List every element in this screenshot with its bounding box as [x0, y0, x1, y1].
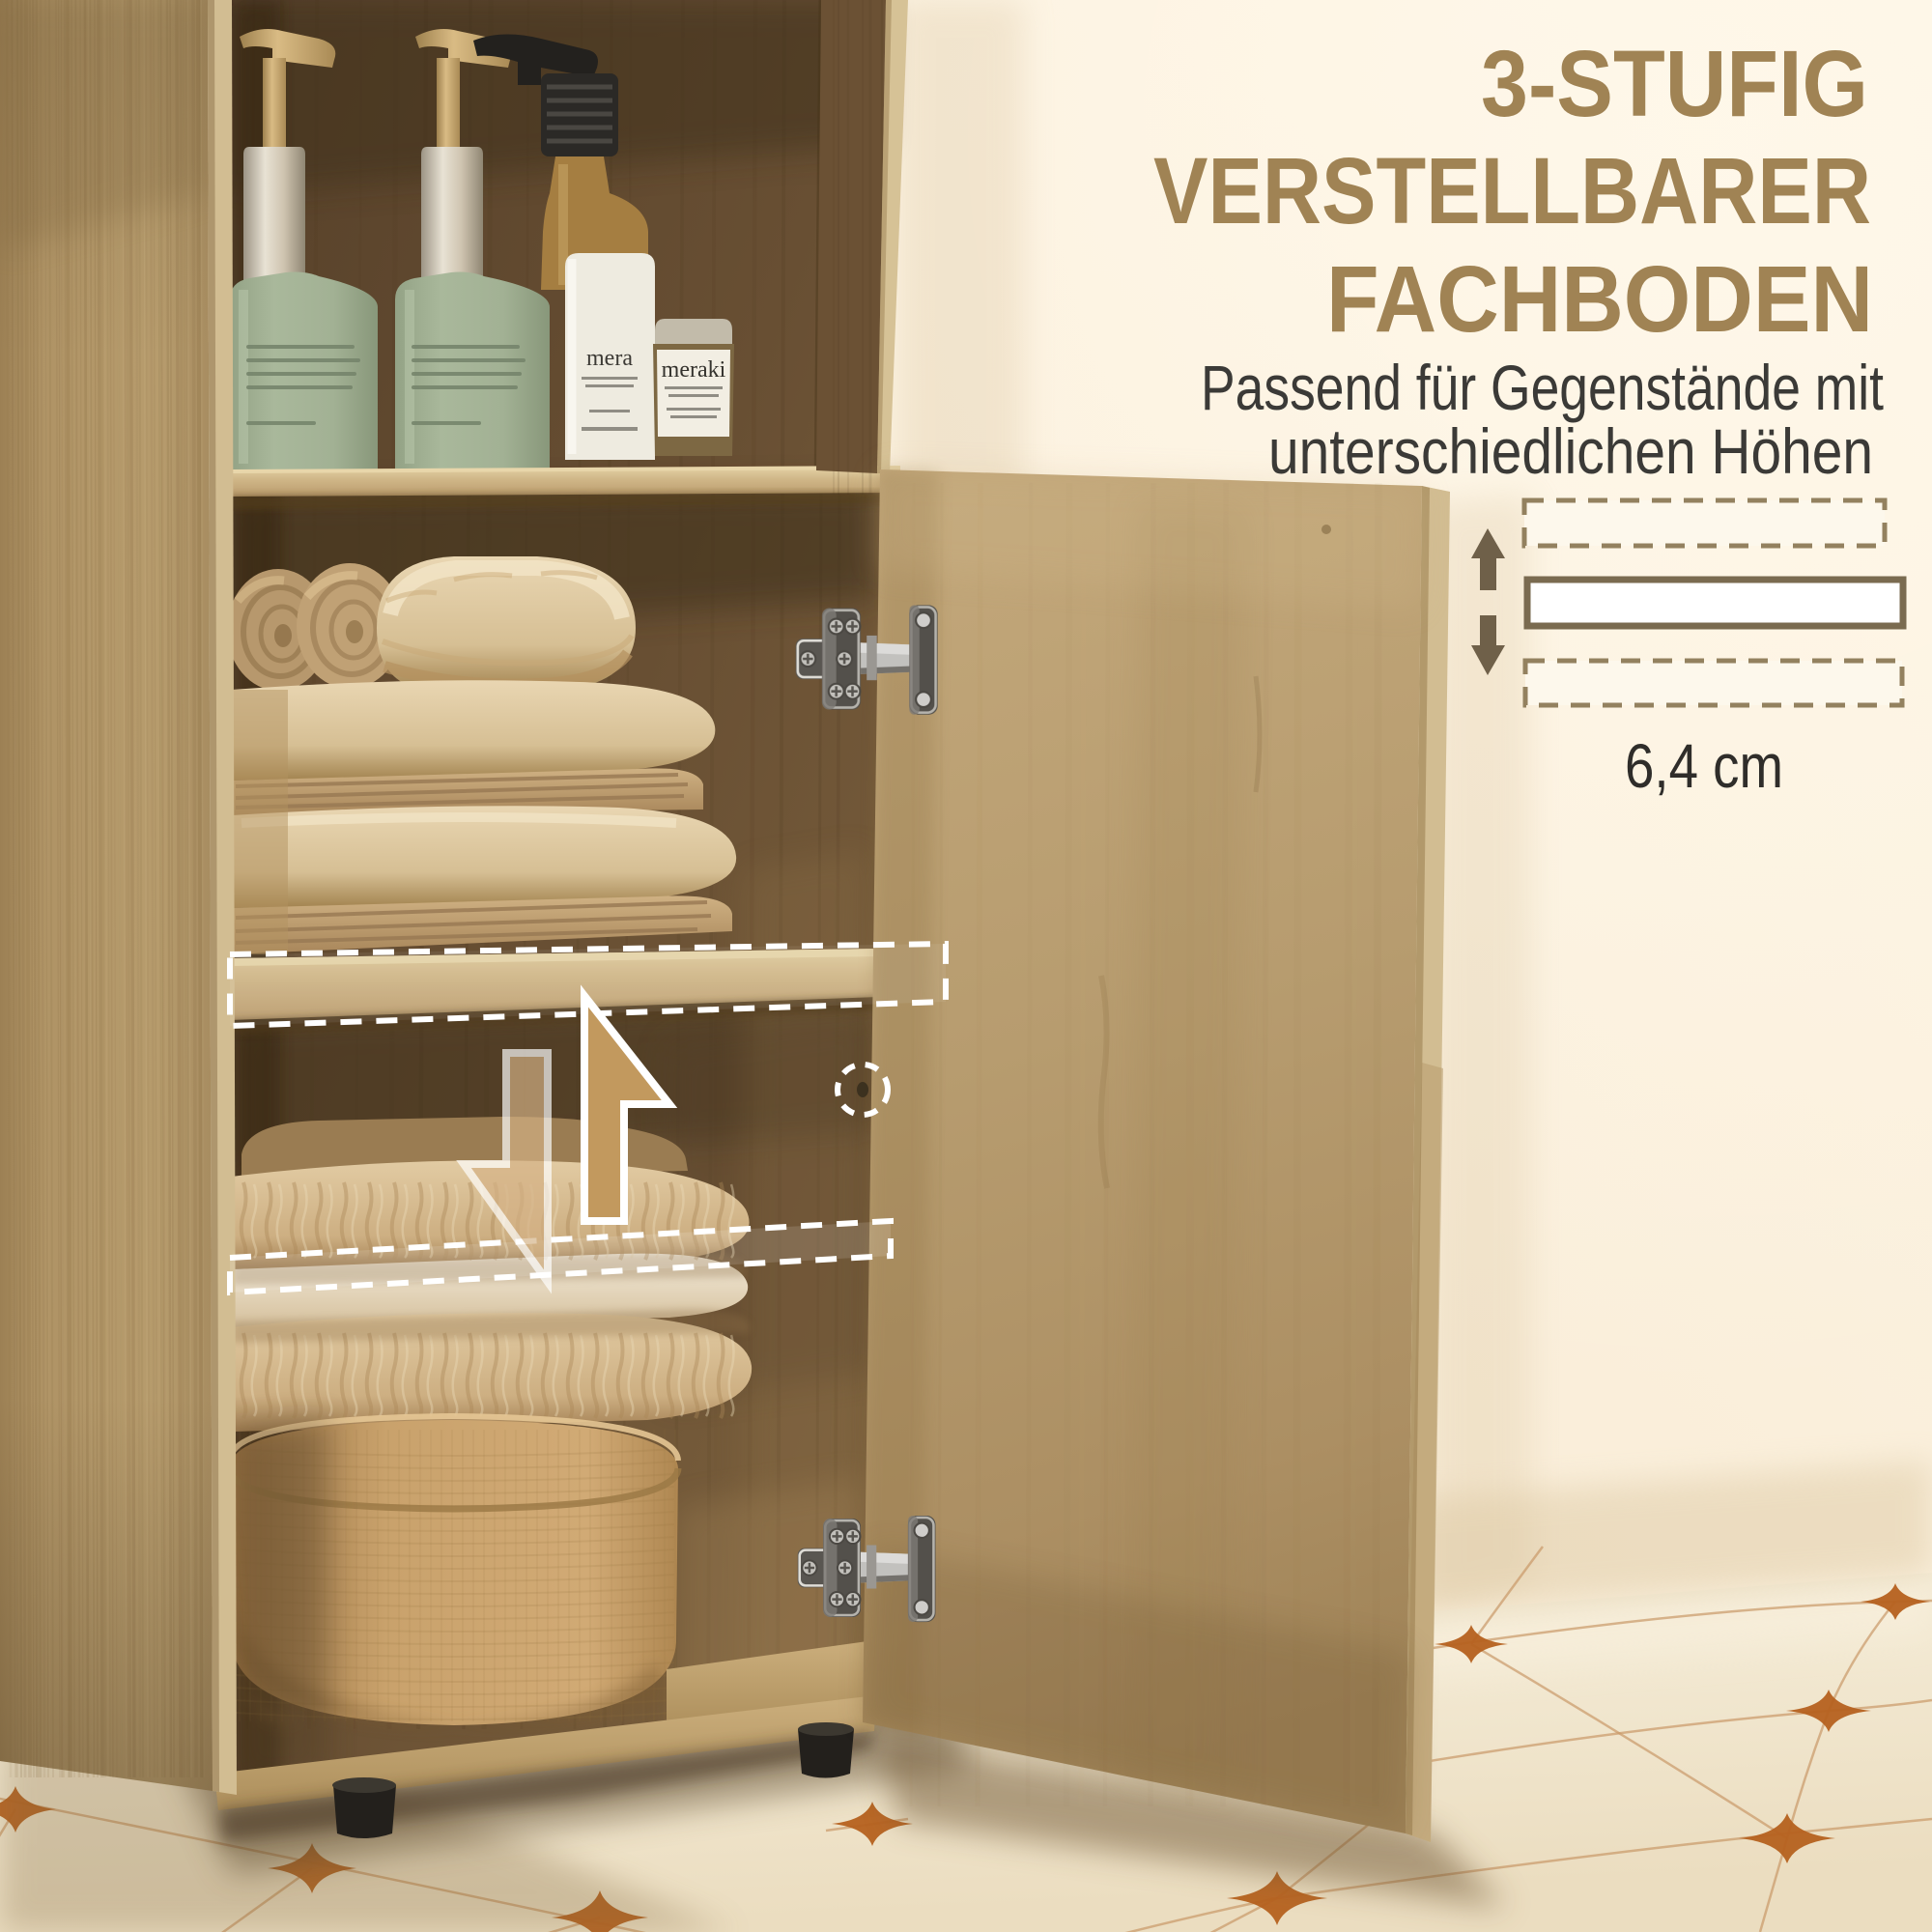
svg-text:VERSTELLBARER: VERSTELLBARER [1153, 138, 1871, 243]
svg-text:meraki: meraki [662, 357, 726, 383]
svg-text:unterschiedlichen Höhen: unterschiedlichen Höhen [1268, 415, 1873, 487]
svg-text:Passend für Gegenstände mit: Passend für Gegenstände mit [1201, 352, 1884, 423]
svg-text:mera: mera [586, 346, 633, 371]
svg-text:3-STUFIG: 3-STUFIG [1481, 31, 1868, 136]
svg-text:6,4 cm: 6,4 cm [1625, 731, 1783, 801]
svg-text:FACHBODEN: FACHBODEN [1326, 246, 1873, 352]
